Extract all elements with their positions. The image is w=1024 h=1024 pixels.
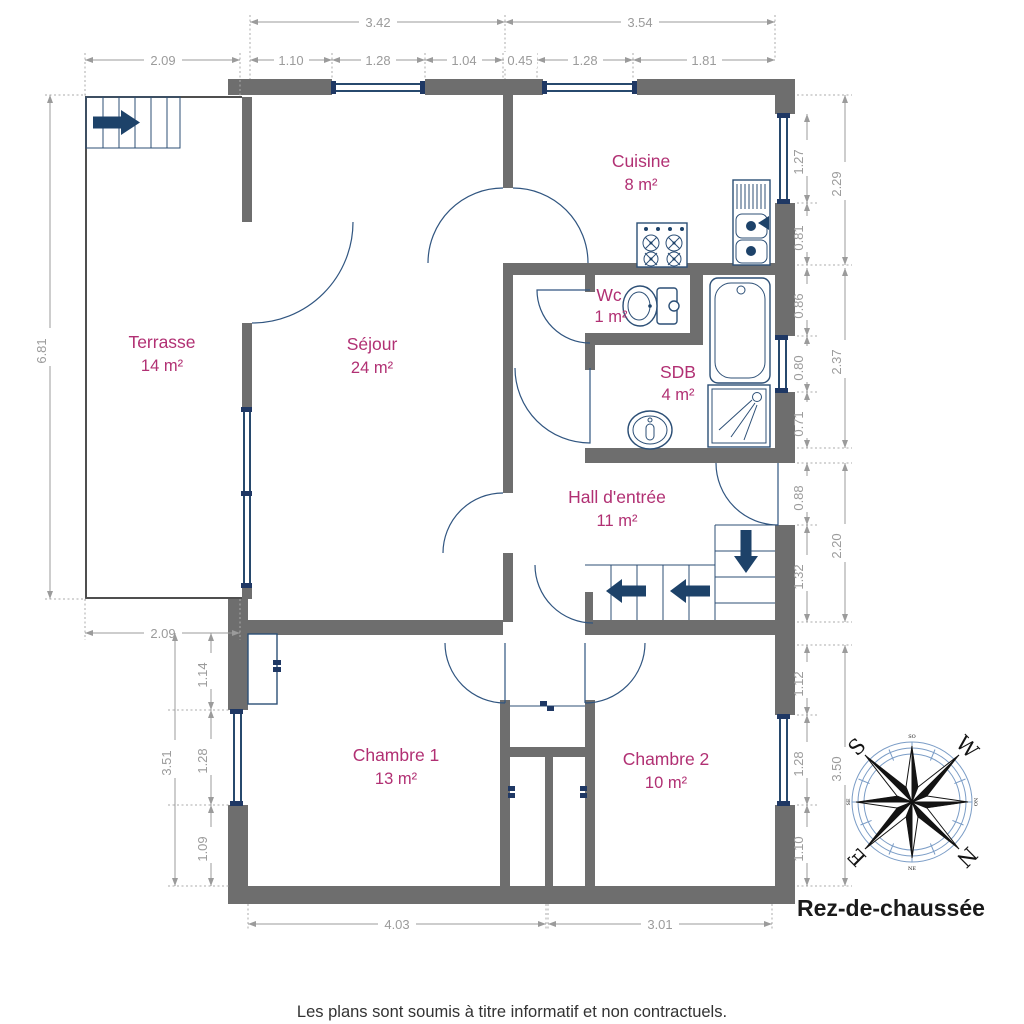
room-label-hall: Hall d'entrée [568, 487, 666, 507]
wall-segment [228, 599, 248, 710]
bathtub-icon [710, 278, 770, 383]
dim-label: 3.42 [365, 15, 390, 30]
dim-label: 6.81 [34, 338, 49, 363]
compass-rose: S W N E SO NO NE SE [843, 731, 983, 872]
toilet-icon [623, 286, 679, 326]
window-cuisine-right [777, 113, 790, 204]
dim-label: 0.81 [791, 225, 806, 250]
dim-label: 2.09 [150, 53, 175, 68]
room-label-wc: Wc [596, 285, 622, 305]
dim-label: 0.71 [791, 411, 806, 436]
kitchen-sink-icon [733, 180, 770, 265]
closet-chambre1 [248, 634, 281, 704]
wall-segment [545, 757, 553, 886]
wall-segment [500, 747, 595, 757]
room-label-chambre1: Chambre 1 [353, 745, 440, 765]
room-label-sejour: Séjour [347, 334, 398, 354]
room-area-sdb: 4 m² [662, 386, 696, 404]
terrace-stairs [86, 97, 180, 148]
wall-segment [588, 620, 795, 635]
extension-lines [45, 15, 852, 931]
dim-label: 1.28 [195, 748, 210, 773]
room-area-chambre2: 10 m² [645, 774, 688, 792]
room-area-cuisine: 8 m² [625, 176, 659, 194]
floor-plan: 3.42 3.54 2.09 1.10 1.28 1.04 0.45 1.28 … [0, 0, 1024, 1024]
room-area-chambre1: 13 m² [375, 770, 418, 788]
wall-segment [585, 345, 595, 370]
window-cuisine-top [542, 81, 637, 94]
dim-label: 1.81 [691, 53, 716, 68]
wall-segment [228, 886, 795, 904]
dim-label: 3.51 [159, 750, 174, 775]
door-sejour-hall [443, 493, 503, 553]
dim-label: 1.10 [278, 53, 303, 68]
wall-segment [425, 79, 543, 95]
room-label-chambre2: Chambre 2 [623, 749, 710, 769]
door-chambre2 [585, 643, 645, 703]
dim-label: 3.54 [627, 15, 652, 30]
wall-segment [503, 263, 513, 493]
compass-minor-label: SO [908, 734, 916, 740]
window-sejour-bay [241, 407, 252, 588]
shower-icon [708, 385, 770, 447]
room-label-cuisine: Cuisine [612, 151, 670, 171]
dim-label: 1.27 [791, 149, 806, 174]
wall-segment [228, 79, 332, 95]
dim-label: 3.01 [647, 917, 672, 932]
dim-label: 1.10 [791, 836, 806, 861]
wall-segment [585, 448, 795, 463]
dim-label: 3.50 [829, 756, 844, 781]
bathroom-sink-icon [628, 411, 672, 449]
dim-label: 0.80 [791, 355, 806, 380]
wall-segment [503, 553, 513, 622]
door-terrasse-sejour [252, 222, 353, 323]
window-chambre1-left [230, 709, 243, 806]
hall-staircase [585, 525, 775, 620]
stairs-left-arrow-icon [606, 579, 646, 603]
room-label-terrasse: Terrasse [128, 332, 195, 352]
stairs-direction-arrow-icon [93, 110, 140, 135]
wall-segment [690, 263, 703, 340]
dimensions: 3.42 3.54 2.09 1.10 1.28 1.04 0.45 1.28 … [34, 14, 853, 932]
dim-label: 1.28 [365, 53, 390, 68]
stove-icon [637, 223, 687, 267]
dim-label: 1.32 [791, 564, 806, 589]
wall-segment [585, 333, 703, 345]
wall-segment [228, 805, 248, 886]
wall-segment [585, 592, 593, 635]
wall-segment [775, 79, 795, 114]
dim-label: 1.09 [195, 836, 210, 861]
room-area-sejour: 24 m² [351, 359, 394, 377]
door-wc [537, 290, 590, 343]
compass-minor-label: SE [846, 798, 852, 805]
room-label-sdb: SDB [660, 362, 696, 382]
dim-label: 1.12 [791, 671, 806, 696]
room-area-hall: 11 m² [597, 512, 638, 530]
dim-label: 2.20 [829, 533, 844, 558]
window-sdb-right [775, 335, 788, 393]
dim-label: 1.04 [451, 53, 476, 68]
disclaimer-text: Les plans sont soumis à titre informatif… [297, 1003, 727, 1021]
dim-label: 2.09 [150, 626, 175, 641]
door-sejour-cuisine [513, 188, 588, 263]
door-chambre1 [445, 643, 505, 703]
page-title: Rez-de-chaussée [797, 895, 985, 921]
room-area-terrasse: 14 m² [141, 357, 184, 375]
dim-label: 0.45 [507, 53, 532, 68]
dim-label: 0.88 [791, 485, 806, 510]
dim-label: 2.37 [829, 349, 844, 374]
dim-label: 1.28 [791, 751, 806, 776]
door-stairs [535, 565, 593, 623]
wall-segment [503, 95, 513, 188]
wall-segment [242, 323, 252, 408]
wall-segment [637, 79, 795, 95]
door-entrance [716, 463, 778, 525]
wall-segment [228, 620, 503, 635]
dim-label: 1.28 [572, 53, 597, 68]
compass-minor-label: NE [908, 866, 916, 872]
walls [228, 79, 795, 904]
dim-label: 4.03 [384, 917, 409, 932]
stairs-left-arrow-icon [670, 579, 710, 603]
dim-label: 1.14 [195, 662, 210, 687]
compass-minor-label: NO [972, 798, 978, 806]
window-chambre2-right [777, 714, 790, 806]
room-labels: Terrasse 14 m² Séjour 24 m² Cuisine 8 m²… [128, 151, 709, 792]
door-sejour-side [428, 188, 503, 263]
dim-label: 2.29 [829, 171, 844, 196]
door-sdb [515, 368, 590, 443]
wall-segment [242, 97, 252, 222]
window-sejour-top [331, 81, 425, 94]
room-area-wc: 1 m² [595, 308, 629, 326]
dim-label: 0.86 [791, 293, 806, 318]
